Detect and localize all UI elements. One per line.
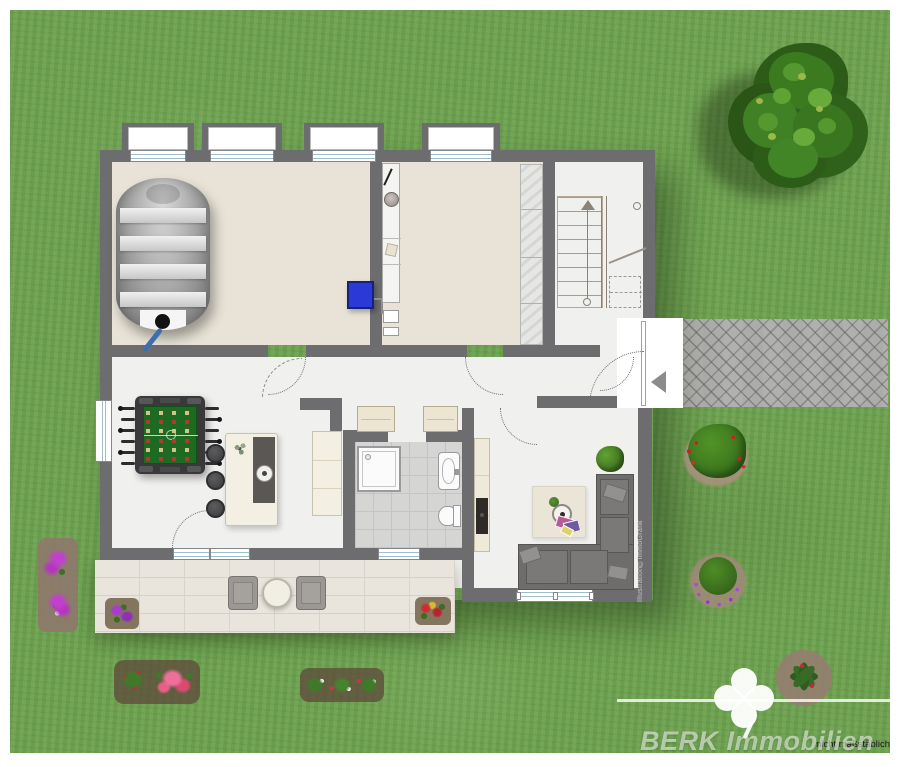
watermark-brand: BERK Immobilien [640,726,890,757]
tv-sideboard-divider [475,475,489,476]
stair-post [633,202,641,210]
cupboard-divider [521,303,542,304]
floor-plan-illustration: Illustration©ImmoGrafik nicht maßstäblic… [0,0,900,767]
potted-plant [596,446,624,472]
wardrobe-rail [361,419,391,420]
patio-table [262,578,292,608]
foosball-rod [205,429,219,432]
foosball-goal [160,398,180,403]
entry-path [683,319,888,407]
foosball-row [146,448,196,452]
stair-handrail [609,247,647,264]
flower-bed-left [38,538,78,632]
sideboard [312,431,342,516]
shrub-blossoms [680,422,754,492]
window [210,548,250,560]
bar-plant [232,441,249,457]
stair-stringer [601,196,607,308]
window-sill [128,127,188,150]
boiler-drum [384,192,399,207]
patio-chair [228,576,258,610]
bar-stool [206,471,225,490]
sofa-cushion [600,517,629,553]
wardrobe-rail [427,419,454,420]
foosball-knob [118,406,123,411]
foosball-knob [118,428,123,433]
stair-guide-line [587,210,588,302]
foosball-row [146,457,196,461]
shower-drain [365,454,371,460]
foosball-corner [187,398,201,404]
stair-post [583,298,591,306]
foosball-rod [121,440,135,443]
window [130,150,186,162]
window-sill [428,127,494,150]
frond-blossom [800,664,804,668]
tree-blossom [768,133,776,140]
foosball-field [143,406,197,464]
flower-bed-bottom-left [114,660,200,704]
window-post [553,592,558,600]
wall [503,345,600,357]
toilet-cistern [453,505,461,527]
tank-band [120,292,206,307]
wall [100,150,112,560]
shower [357,446,401,492]
foosball-rod [205,407,219,410]
flower-bed-bottom-right [776,650,832,706]
tree-highlight [758,113,778,131]
foosball-row [146,420,196,424]
illustration-credit: Illustration©ImmoGrafik [637,514,649,602]
frond-blossom [810,684,814,688]
tree-blossom [816,106,823,112]
window [378,548,420,560]
foosball-knob [217,439,222,444]
bar-stool [206,499,225,518]
tv-mount [480,513,484,517]
tree [698,28,883,210]
tank-outlet [155,314,170,329]
stair-lower-flight-dashed [609,276,641,308]
foosball-rod [121,462,135,465]
patio-door[interactable] [173,548,210,560]
cupboard-divider [521,257,542,258]
sideboard-divider [313,460,341,461]
foosball-row [146,411,196,415]
boiler-pipe [383,168,392,185]
foosball-goal [160,467,180,472]
wall [330,398,342,431]
wall-box [383,327,399,336]
window [517,588,593,602]
patio-flowers-purple [105,598,139,629]
window-post [589,592,594,600]
tree-blossom [756,98,763,104]
foosball-rod [121,451,135,454]
shelf-line [383,238,401,239]
foosball-rod [121,407,135,410]
staircase [557,196,643,314]
foosball-corner [139,398,153,404]
wall [112,345,268,357]
bar-tap [262,471,267,476]
tree-blossom [798,73,806,80]
tv-sideboard [474,438,490,552]
sideboard-divider [313,488,341,489]
foosball-corner [139,466,153,472]
tree-highlight [793,128,815,146]
washbasin-tap [454,469,459,475]
sofa-cushion [570,550,608,584]
shrub-purple-flowers [686,550,750,612]
boiler-column [382,163,400,303]
tree-highlight [818,118,836,134]
wall [643,150,655,318]
patio-flowers-red [415,597,451,625]
bar-sink [256,465,273,482]
foosball-rod [121,429,135,432]
foosball-row [146,429,196,433]
wardrobe [423,406,458,432]
patio-chair [296,576,326,610]
window-sill [310,127,378,150]
tank-band [120,236,206,251]
foosball-rod [121,418,135,421]
shrub-red-flowers [680,422,754,492]
shelf-item [385,243,398,257]
window-sill [208,127,276,150]
tv [476,498,488,534]
wall [100,548,173,560]
blue-wall-unit [347,281,374,309]
foosball-knob [217,417,222,422]
storage-tank [116,178,210,330]
tank-cap [146,184,180,204]
patio-chair-seat [233,582,253,604]
foosball-row [146,439,196,443]
window [430,150,492,162]
tank-band [120,208,206,223]
entrance-arrow-icon [651,371,666,393]
wall [250,548,378,560]
wall [370,162,382,357]
shrub-blossoms [686,550,750,612]
window [95,400,112,462]
bar-stool [206,444,225,463]
window-post [516,592,521,600]
wall-box [383,310,399,323]
patio-chair-seat [301,582,321,604]
window [210,150,274,162]
stair-treads [557,196,603,308]
shelf-line [383,264,401,265]
washbasin [438,452,460,490]
stair-up-arrow [581,200,595,210]
corner-sofa [518,474,634,590]
foosball-corner [187,466,201,472]
tank-band [120,264,206,279]
stair-dashed-tread [610,292,642,293]
foosball-table [135,396,205,474]
wall [543,162,555,357]
stone-cupboard [520,164,543,345]
wall [306,345,467,357]
tree-highlight [773,88,791,104]
wall [420,548,462,560]
foosball-knob [118,450,123,455]
bar-counter [225,433,278,526]
flower-bed-bottom-center [300,668,384,702]
window [312,150,376,162]
wall [343,430,355,548]
cupboard-divider [521,209,542,210]
wardrobe [357,406,395,432]
tree-highlight [808,88,832,108]
